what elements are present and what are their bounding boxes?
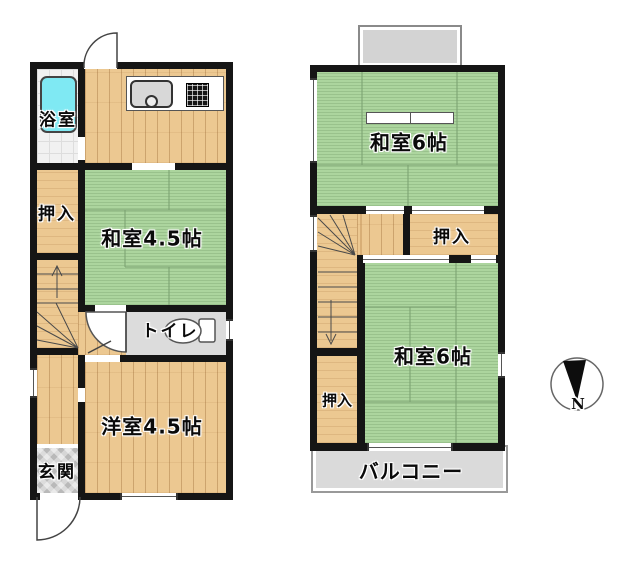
wall: [37, 253, 85, 260]
entrance-step: [37, 444, 78, 448]
stairs-2f: [317, 214, 357, 348]
stair-landing-2f: [357, 214, 403, 255]
wall: [78, 362, 85, 493]
room-label-closet-2f-south: 押入: [322, 390, 352, 411]
window: [120, 493, 178, 500]
door-opening: [95, 305, 126, 312]
wall: [37, 348, 78, 355]
stairs-1f: [37, 260, 78, 348]
room-label-balcony: バルコニー: [359, 456, 464, 485]
room-label-closet-2f-north: 押入: [433, 223, 471, 248]
window: [310, 215, 317, 252]
room-label-western-1f: 洋室4.5帖: [101, 411, 202, 440]
window-bar-2f: [366, 112, 454, 124]
room-label-tatami-2f-south: 和室6帖: [394, 341, 472, 370]
window: [498, 352, 505, 378]
door-opening: [132, 163, 175, 170]
wall: [310, 65, 505, 72]
room-label-entrance: 玄関: [38, 458, 76, 483]
wall: [498, 65, 505, 451]
door-opening: [78, 137, 85, 160]
compass-icon: N: [551, 358, 603, 413]
entrance-door-arc: [37, 497, 80, 540]
wall: [78, 69, 85, 312]
window: [226, 319, 233, 341]
door-opening: [84, 62, 117, 69]
sliding-door-opening: [471, 255, 496, 263]
room-label-tatami-2f-north: 和室6帖: [370, 127, 448, 156]
wall: [30, 62, 37, 500]
wall: [226, 62, 233, 500]
door-opening: [85, 355, 120, 362]
hall-pocket-1f: [85, 312, 126, 355]
compass-north-label: N: [571, 395, 585, 413]
sliding-door-opening: [366, 206, 404, 214]
stove-icon: [186, 83, 209, 107]
window: [310, 78, 317, 163]
floor-plan: N 浴室 押入 和室4.5帖 トイレ 洋室4.5帖 玄関 和室6帖 押入 和室6…: [0, 0, 640, 565]
door-opening: [78, 388, 85, 402]
balcony-opening: [367, 443, 453, 451]
wall: [317, 348, 357, 356]
sliding-door-opening: [412, 206, 484, 214]
hallway-1f-floor: [37, 355, 78, 448]
room-label-bath: 浴室: [39, 106, 77, 131]
window: [30, 368, 37, 398]
roof-block: [358, 25, 462, 68]
wall: [357, 263, 365, 443]
wall: [403, 214, 410, 255]
hall-connector-1f: [78, 312, 85, 355]
room-label-closet-1f: 押入: [38, 200, 76, 225]
wall: [449, 255, 471, 263]
wall: [30, 62, 233, 69]
faucet-icon: [145, 95, 158, 108]
door-opening: [40, 493, 78, 500]
sliding-door-opening: [363, 255, 449, 263]
room-label-tatami-1f: 和室4.5帖: [101, 223, 202, 252]
room-label-toilet: トイレ: [142, 317, 199, 342]
